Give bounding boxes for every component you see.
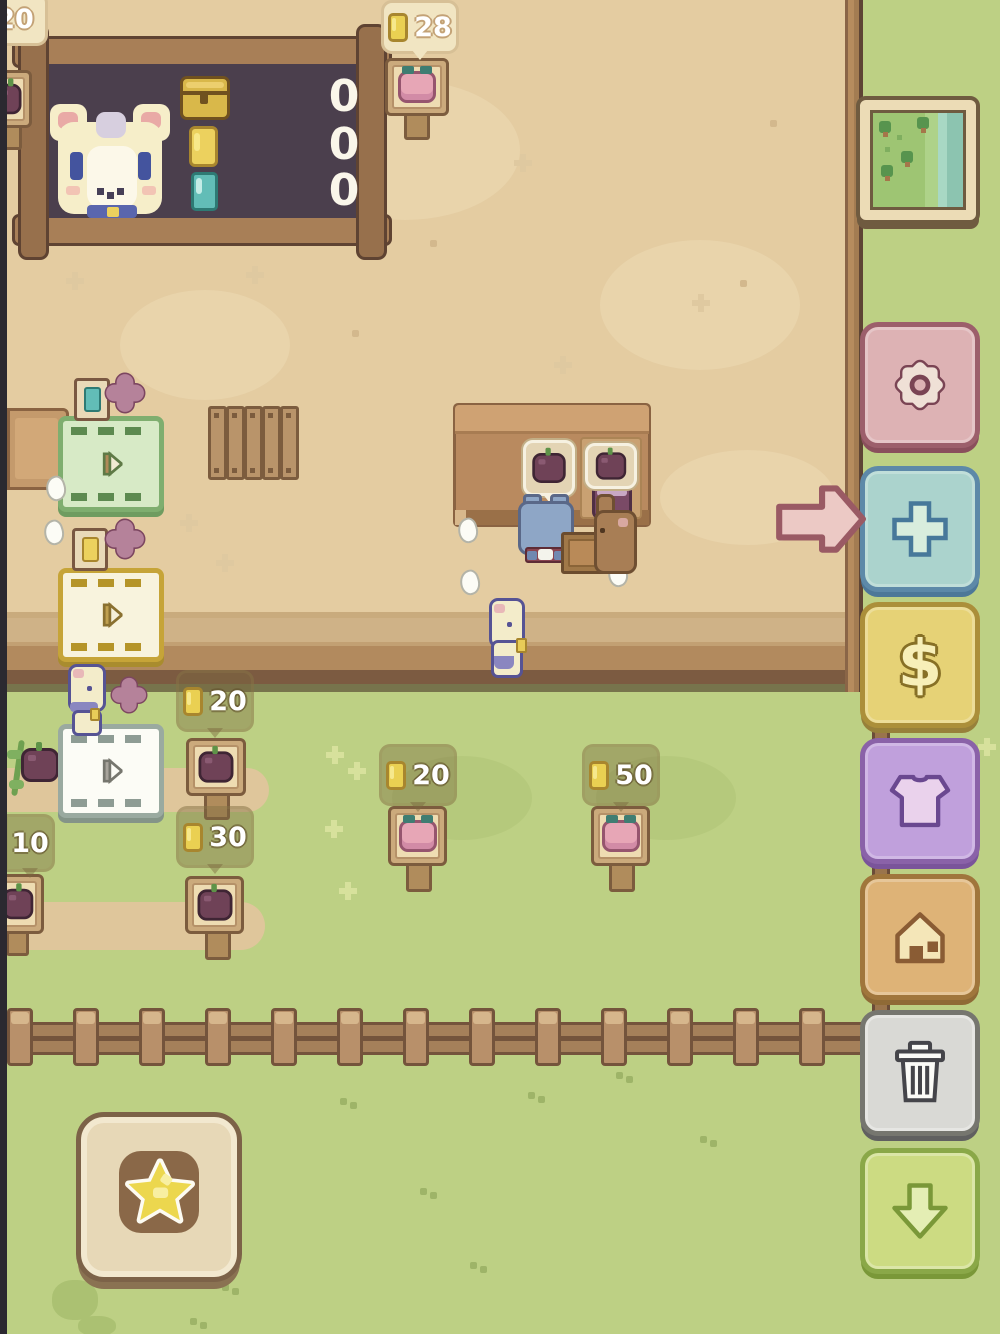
star-button[interactable] xyxy=(76,1112,242,1282)
hamster-eye xyxy=(70,152,83,180)
ground-speck xyxy=(252,272,258,278)
fence-post xyxy=(271,1008,297,1066)
outfit-button[interactable] xyxy=(860,738,980,864)
hamster-mouth xyxy=(107,192,114,199)
play-icon xyxy=(94,447,128,481)
dispenser-gold[interactable] xyxy=(58,568,164,662)
fruit-stand-sign[interactable] xyxy=(186,738,246,796)
dash-strip xyxy=(71,427,151,435)
coin-icon xyxy=(82,537,99,562)
coin-count: 0 xyxy=(326,122,362,168)
fence-post xyxy=(73,1008,99,1066)
home-button[interactable] xyxy=(860,874,980,1000)
plant-leaf xyxy=(9,780,24,789)
grass-sparkle xyxy=(354,768,360,774)
grass-tuft xyxy=(700,1136,707,1143)
fence-post xyxy=(205,1008,231,1066)
sale-bubble xyxy=(585,443,637,489)
grass-sparkle xyxy=(332,752,338,758)
bunny-eye xyxy=(507,622,512,627)
apple-icon xyxy=(197,889,232,920)
coin-slot-icon xyxy=(72,528,108,571)
map-speck xyxy=(897,135,902,140)
dispenser-green[interactable] xyxy=(58,416,164,512)
apple-icon xyxy=(532,453,565,483)
coin-icon xyxy=(386,761,406,790)
hamster-mouth xyxy=(97,188,104,195)
conveyor-top xyxy=(15,418,58,479)
price-value: 20 xyxy=(209,686,247,717)
gem-icon xyxy=(84,387,101,412)
coin-icon xyxy=(183,823,203,852)
white-bunny-sitting[interactable] xyxy=(62,664,110,730)
gem-count: 0 xyxy=(326,168,362,214)
coin-icon xyxy=(189,126,218,167)
apple-icon xyxy=(199,751,234,782)
coin-pouch xyxy=(516,638,527,653)
chest-highlight xyxy=(186,82,224,88)
gear-icon xyxy=(888,353,952,417)
bunny-eye xyxy=(600,528,605,533)
tutorial-pointer-arrow-icon xyxy=(771,470,867,568)
grass-tuft xyxy=(190,1318,197,1325)
sign-face xyxy=(392,65,442,109)
peach-icon xyxy=(602,820,640,852)
gem-shine xyxy=(196,178,202,194)
dash-strip xyxy=(71,493,151,501)
grass-tuft xyxy=(470,1262,477,1269)
clover-icon xyxy=(110,676,148,714)
plank xyxy=(280,406,299,480)
price-bubble: 30 xyxy=(176,806,254,868)
dispenser-white[interactable] xyxy=(58,724,164,818)
coin-icon xyxy=(589,761,609,790)
fence-post xyxy=(733,1008,759,1066)
bubble-tail xyxy=(207,728,223,738)
map-tree xyxy=(879,121,891,133)
coin-icon xyxy=(388,13,408,42)
grass-sparkle xyxy=(984,744,990,750)
hamster-cheek xyxy=(142,186,156,195)
plank xyxy=(208,406,227,480)
ground-speck xyxy=(430,240,437,247)
price-bubble-stand: 28 xyxy=(381,0,459,54)
fence xyxy=(7,1008,863,1066)
house-icon xyxy=(887,907,953,967)
ground-speck xyxy=(186,520,192,526)
fence-post xyxy=(799,1008,825,1066)
brown-bunny[interactable] xyxy=(594,498,634,570)
tomato-fruit xyxy=(21,748,59,782)
bunny-ear-patch xyxy=(618,518,628,527)
ground-speck xyxy=(770,120,777,127)
ground-speck xyxy=(560,362,566,368)
ground-speck xyxy=(698,300,704,306)
bunny-ear-patch xyxy=(494,604,505,613)
ground-speck xyxy=(72,278,78,284)
dash-strip xyxy=(71,735,151,743)
screen-edge xyxy=(0,0,7,1334)
bubble-tail xyxy=(207,864,223,874)
price-bubble: 10 xyxy=(5,814,55,872)
dash-strip xyxy=(71,579,151,587)
price-bubble: 50 xyxy=(582,744,660,806)
price-value: 30 xyxy=(209,822,247,853)
map-button[interactable] xyxy=(856,96,980,224)
plank xyxy=(226,406,245,480)
trash-icon xyxy=(888,1040,952,1106)
dollar-icon: $ xyxy=(898,633,943,697)
map-icon xyxy=(870,110,966,210)
grass-sparkle xyxy=(345,888,351,894)
clover-icon xyxy=(104,372,146,414)
price-value: 20 xyxy=(412,760,450,791)
price-bubble-corner: 20 xyxy=(0,0,48,46)
grass-blob xyxy=(78,1316,116,1334)
counter-top xyxy=(455,405,649,434)
dash-strip xyxy=(71,643,151,651)
ground-speck xyxy=(520,160,526,166)
sign-face xyxy=(395,813,440,859)
trash-button[interactable] xyxy=(860,1010,980,1136)
coin-pouch xyxy=(90,708,100,721)
map-tree xyxy=(881,165,893,177)
star-icon xyxy=(125,1157,195,1225)
down-arrow-icon xyxy=(887,1178,953,1244)
grass-tuft xyxy=(222,1284,229,1291)
chest-count: 0 xyxy=(326,74,362,120)
grass-sparkle xyxy=(331,826,337,832)
bunny-eye xyxy=(87,686,92,691)
plus-icon xyxy=(887,496,953,562)
bunny-ear-patch xyxy=(73,669,84,678)
sale-bubble xyxy=(523,440,575,496)
scoreboard[interactable]: 0 0 0 xyxy=(0,0,420,270)
treasure-chest-icon xyxy=(180,76,230,120)
grass-blob xyxy=(52,1280,98,1320)
gem-icon xyxy=(191,172,218,211)
fence-post xyxy=(601,1008,627,1066)
fence-post xyxy=(7,1008,33,1066)
cat-paw xyxy=(538,549,553,560)
apple-icon xyxy=(596,452,626,479)
fence-post xyxy=(139,1008,165,1066)
peach-icon xyxy=(398,71,436,103)
fence-post xyxy=(535,1008,561,1066)
clover-icon xyxy=(104,518,146,560)
fruit-stand-sign[interactable] xyxy=(591,806,650,866)
peach-icon xyxy=(399,820,437,852)
ground-speck xyxy=(740,280,747,287)
play-icon xyxy=(94,598,128,632)
ground-speck xyxy=(352,330,359,337)
map-speck xyxy=(885,147,890,152)
fruit-stand-sign[interactable] xyxy=(385,58,449,116)
scoreboard-left-post xyxy=(18,24,49,260)
map-tree xyxy=(901,151,913,163)
hamster-forehead-patch xyxy=(96,112,126,138)
price-value: 10 xyxy=(11,828,49,859)
white-bunny-walking[interactable] xyxy=(485,598,525,674)
price-bubble: 20 xyxy=(379,744,457,806)
plank-pile xyxy=(208,406,300,478)
price-bubble: 20 xyxy=(176,670,254,732)
hamster-cheek xyxy=(66,186,80,195)
plank xyxy=(262,406,281,480)
hide-ui-button[interactable] xyxy=(860,1148,980,1274)
grass-tuft xyxy=(340,1098,347,1105)
fence-post xyxy=(469,1008,495,1066)
collar-badge xyxy=(107,207,119,217)
settings-button[interactable] xyxy=(860,322,980,448)
play-icon xyxy=(94,754,128,788)
tomato-plant[interactable] xyxy=(7,736,59,806)
fence-post xyxy=(337,1008,363,1066)
dash-strip xyxy=(71,799,151,807)
fence-post xyxy=(403,1008,429,1066)
game-screen: 0 0 0 20 28 xyxy=(0,0,1000,1334)
chest-keyhole xyxy=(200,93,208,104)
fruit-stand-sign[interactable] xyxy=(388,806,447,866)
coin-shine xyxy=(194,133,200,151)
bunny-outfit xyxy=(494,656,514,669)
scoreboard-bottom-bar xyxy=(12,214,392,246)
plank xyxy=(244,406,263,480)
cat-leg xyxy=(527,551,537,560)
sign-face xyxy=(193,745,239,789)
apple-icon xyxy=(3,889,34,920)
bunny-body xyxy=(594,510,637,574)
grass-tuft xyxy=(528,1092,535,1099)
grass-tuft xyxy=(616,1072,623,1079)
hamster-avatar xyxy=(50,104,172,218)
map-tree xyxy=(917,117,929,129)
price-value: 28 xyxy=(414,12,452,43)
money-button[interactable]: $ xyxy=(860,602,980,728)
hamster-mouth xyxy=(117,188,124,195)
fence-post xyxy=(667,1008,693,1066)
fruit-stand-sign[interactable] xyxy=(185,876,244,934)
add-button[interactable] xyxy=(860,466,980,592)
grass-tuft xyxy=(420,1188,427,1195)
price-value: 50 xyxy=(615,760,653,791)
shirt-icon xyxy=(887,772,953,830)
sign-face xyxy=(192,883,237,927)
sign-face xyxy=(598,813,643,859)
hamster-eye xyxy=(138,152,151,180)
ground-speck xyxy=(222,560,228,566)
coin-icon xyxy=(183,687,203,716)
